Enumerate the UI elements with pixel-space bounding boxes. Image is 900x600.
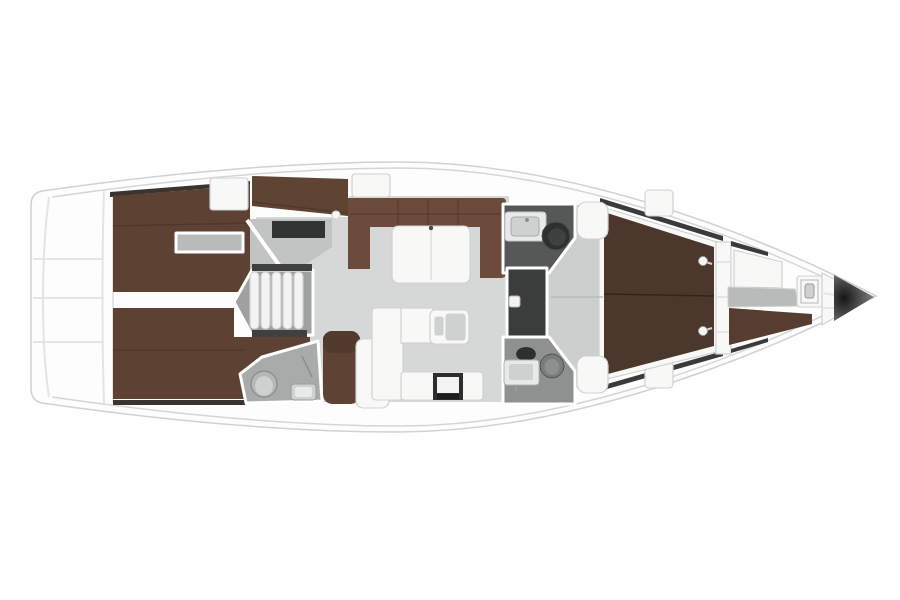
port-berth-notch: [176, 233, 243, 252]
forepeak-console-fixture: [805, 284, 814, 298]
head-starboard-corner-bench: [577, 356, 608, 393]
head-starboard-toilet-lid: [516, 347, 536, 361]
head-starboard-toilet-seat: [545, 359, 560, 375]
step-5: [294, 272, 303, 329]
step-1: [250, 272, 259, 329]
head-starboard-sink-basin: [509, 364, 533, 380]
galley-stove-door: [437, 377, 459, 393]
head-port-corner-bench: [577, 202, 608, 239]
step-4: [283, 272, 292, 329]
salon-side-cabinet: [352, 174, 390, 197]
salon-table-hinge: [429, 226, 433, 230]
reading-lamp-top: [699, 257, 708, 266]
aft-head-sink-basin: [295, 387, 312, 397]
floor-plan-page: [0, 0, 900, 600]
head-port-sink-basin: [511, 217, 539, 236]
forepeak-step-unit: [728, 287, 800, 307]
shower-control: [509, 296, 520, 307]
reading-lamp-bottom: [699, 327, 708, 336]
companionway-shadow-top: [252, 264, 312, 271]
galley-counter-side: [372, 308, 403, 400]
starboard-cabin-window-strip: [113, 400, 247, 405]
step-3: [272, 272, 281, 329]
galley-stove-band: [437, 394, 459, 399]
port-cabin-cabinet: [210, 178, 248, 210]
galley-sink-large: [446, 314, 465, 340]
head-port-toilet-seat: [548, 228, 566, 246]
step-2: [261, 272, 270, 329]
deck-hatch-top: [645, 190, 673, 216]
galley-counter-top: [401, 308, 433, 343]
wardrobe: [272, 221, 325, 238]
head-port-faucet: [525, 218, 529, 222]
anchor-locker: [834, 275, 874, 321]
aft-head-toilet-lid: [255, 376, 273, 396]
locker-knob: [332, 211, 340, 219]
companionway-shadow-bottom: [252, 330, 307, 337]
galley-sink-small: [435, 317, 443, 335]
floor-plan-canvas: [0, 0, 900, 600]
nav-seat-backrest: [323, 331, 360, 353]
bow-wedge-panel: [822, 273, 836, 325]
